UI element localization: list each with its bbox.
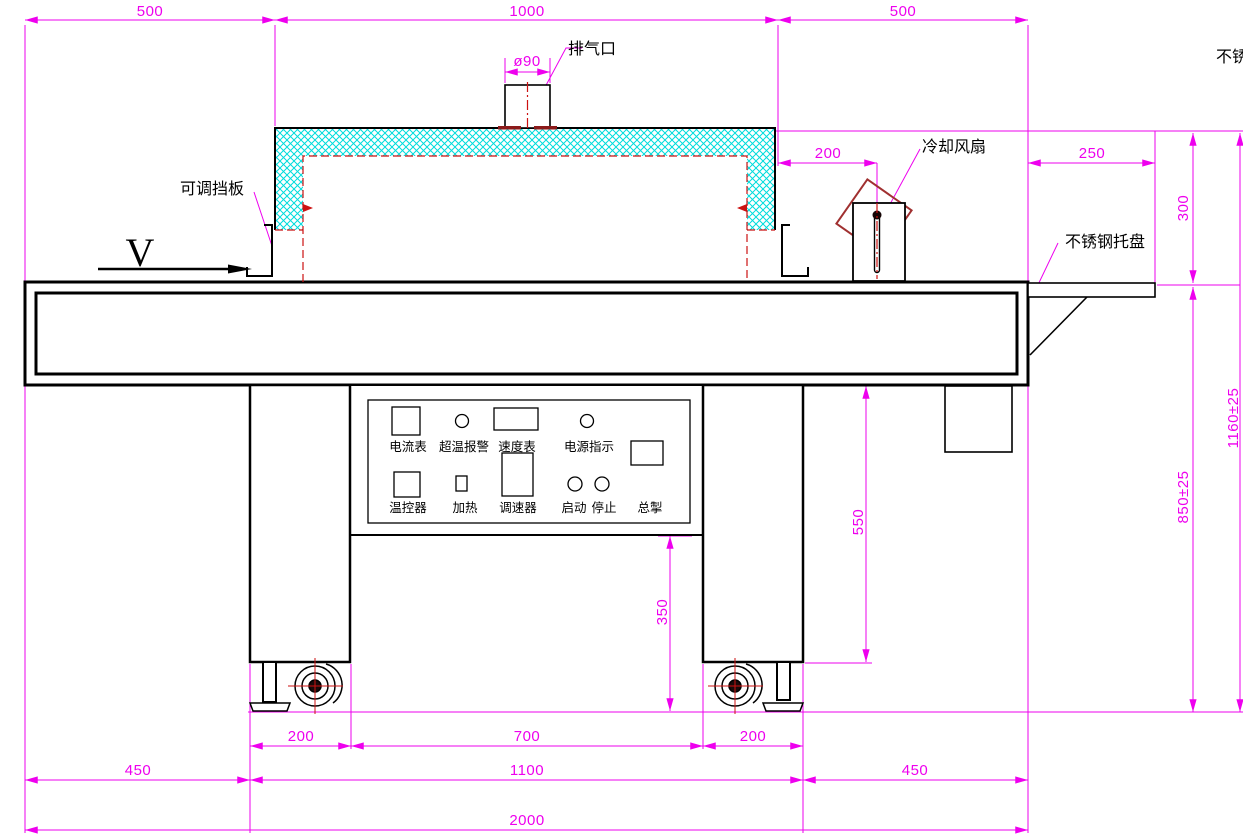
leader-adjustable-baffle <box>254 192 272 246</box>
label-adjustable-baffle: 可调挡板 <box>180 180 244 198</box>
left-liner-flag <box>303 204 313 212</box>
hood-insulation-left <box>275 156 303 230</box>
hood-insulation-right <box>747 156 775 230</box>
left-foot-plate <box>250 703 290 711</box>
view-direction-label: V <box>126 230 155 275</box>
label-ammeter: 电流表 <box>389 440 427 454</box>
dim-fan-offset: 200 <box>815 145 842 162</box>
conveyor-body <box>25 282 1028 385</box>
dim-top-left: 500 <box>137 3 164 20</box>
label-master-switch: 总掣 <box>637 501 662 515</box>
right-baffle <box>782 225 808 276</box>
dim-bottom-left: 450 <box>125 762 152 779</box>
left-leg <box>250 385 350 662</box>
label-speed-meter: 速度表 <box>498 439 536 454</box>
machine-layer <box>25 85 1155 711</box>
dim-total-length: 2000 <box>509 812 544 829</box>
engineering-drawing-canvas: 500 1000 500 ø90 200 250 300 850±25 1160… <box>0 0 1243 840</box>
left-baffle <box>247 225 272 276</box>
label-heating: 加热 <box>452 501 478 515</box>
label-start: 启动 <box>561 501 586 515</box>
label-stainless-tray: 不锈钢托盘 <box>1065 232 1145 251</box>
dim-top-middle: 1000 <box>509 3 544 20</box>
hood-inner-liner-dashed <box>303 156 747 282</box>
chimney-flange-left <box>498 126 521 130</box>
motor-box <box>945 386 1012 452</box>
dim-total-height: 1160±25 <box>1225 388 1242 449</box>
label-power-indicator: 电源指示 <box>564 439 614 454</box>
dim-leg-span: 1100 <box>510 762 544 779</box>
dim-leg-spacing: 700 <box>514 728 541 745</box>
dim-top-right: 500 <box>890 3 917 20</box>
hood-insulation-top <box>275 128 775 156</box>
dim-belt-height: 850±25 <box>1175 471 1192 524</box>
left-caster <box>295 664 342 706</box>
dim-right-leg-width: 200 <box>740 728 767 745</box>
right-leg <box>703 385 803 662</box>
right-foot-plate <box>763 703 803 711</box>
label-speed-governor: 调速器 <box>499 501 537 515</box>
right-foot-shaft <box>777 662 790 700</box>
leader-stainless-tray <box>1036 243 1058 289</box>
right-liner-flag <box>737 204 747 212</box>
label-stop: 停止 <box>591 500 616 515</box>
label-temp-controller: 温控器 <box>389 501 427 515</box>
dim-tray-length: 250 <box>1079 145 1106 162</box>
label-top-right-clipped: 不锈 <box>1216 48 1243 66</box>
label-exhaust-port: 排气口 <box>568 40 616 58</box>
dim-tray-drop: 300 <box>1175 195 1192 222</box>
tunnel-oven-side-view: 500 1000 500 ø90 200 250 300 850±25 1160… <box>0 0 1243 840</box>
chimney-flange-right <box>534 126 557 130</box>
direction-arrow <box>98 265 252 274</box>
dim-bottom-right: 450 <box>902 762 929 779</box>
dim-leg-height: 550 <box>850 509 867 536</box>
label-cooling-fan: 冷却风扇 <box>922 138 986 156</box>
dim-exhaust-diameter: ø90 <box>513 53 540 70</box>
dim-left-leg-width: 200 <box>288 728 315 745</box>
left-foot-shaft <box>263 662 276 702</box>
tray-brace <box>1030 297 1087 355</box>
label-overtemp-alarm: 超温报警 <box>439 439 489 454</box>
right-caster <box>715 664 762 706</box>
dim-panel-to-ground: 350 <box>654 599 671 626</box>
stainless-tray <box>1028 283 1155 297</box>
